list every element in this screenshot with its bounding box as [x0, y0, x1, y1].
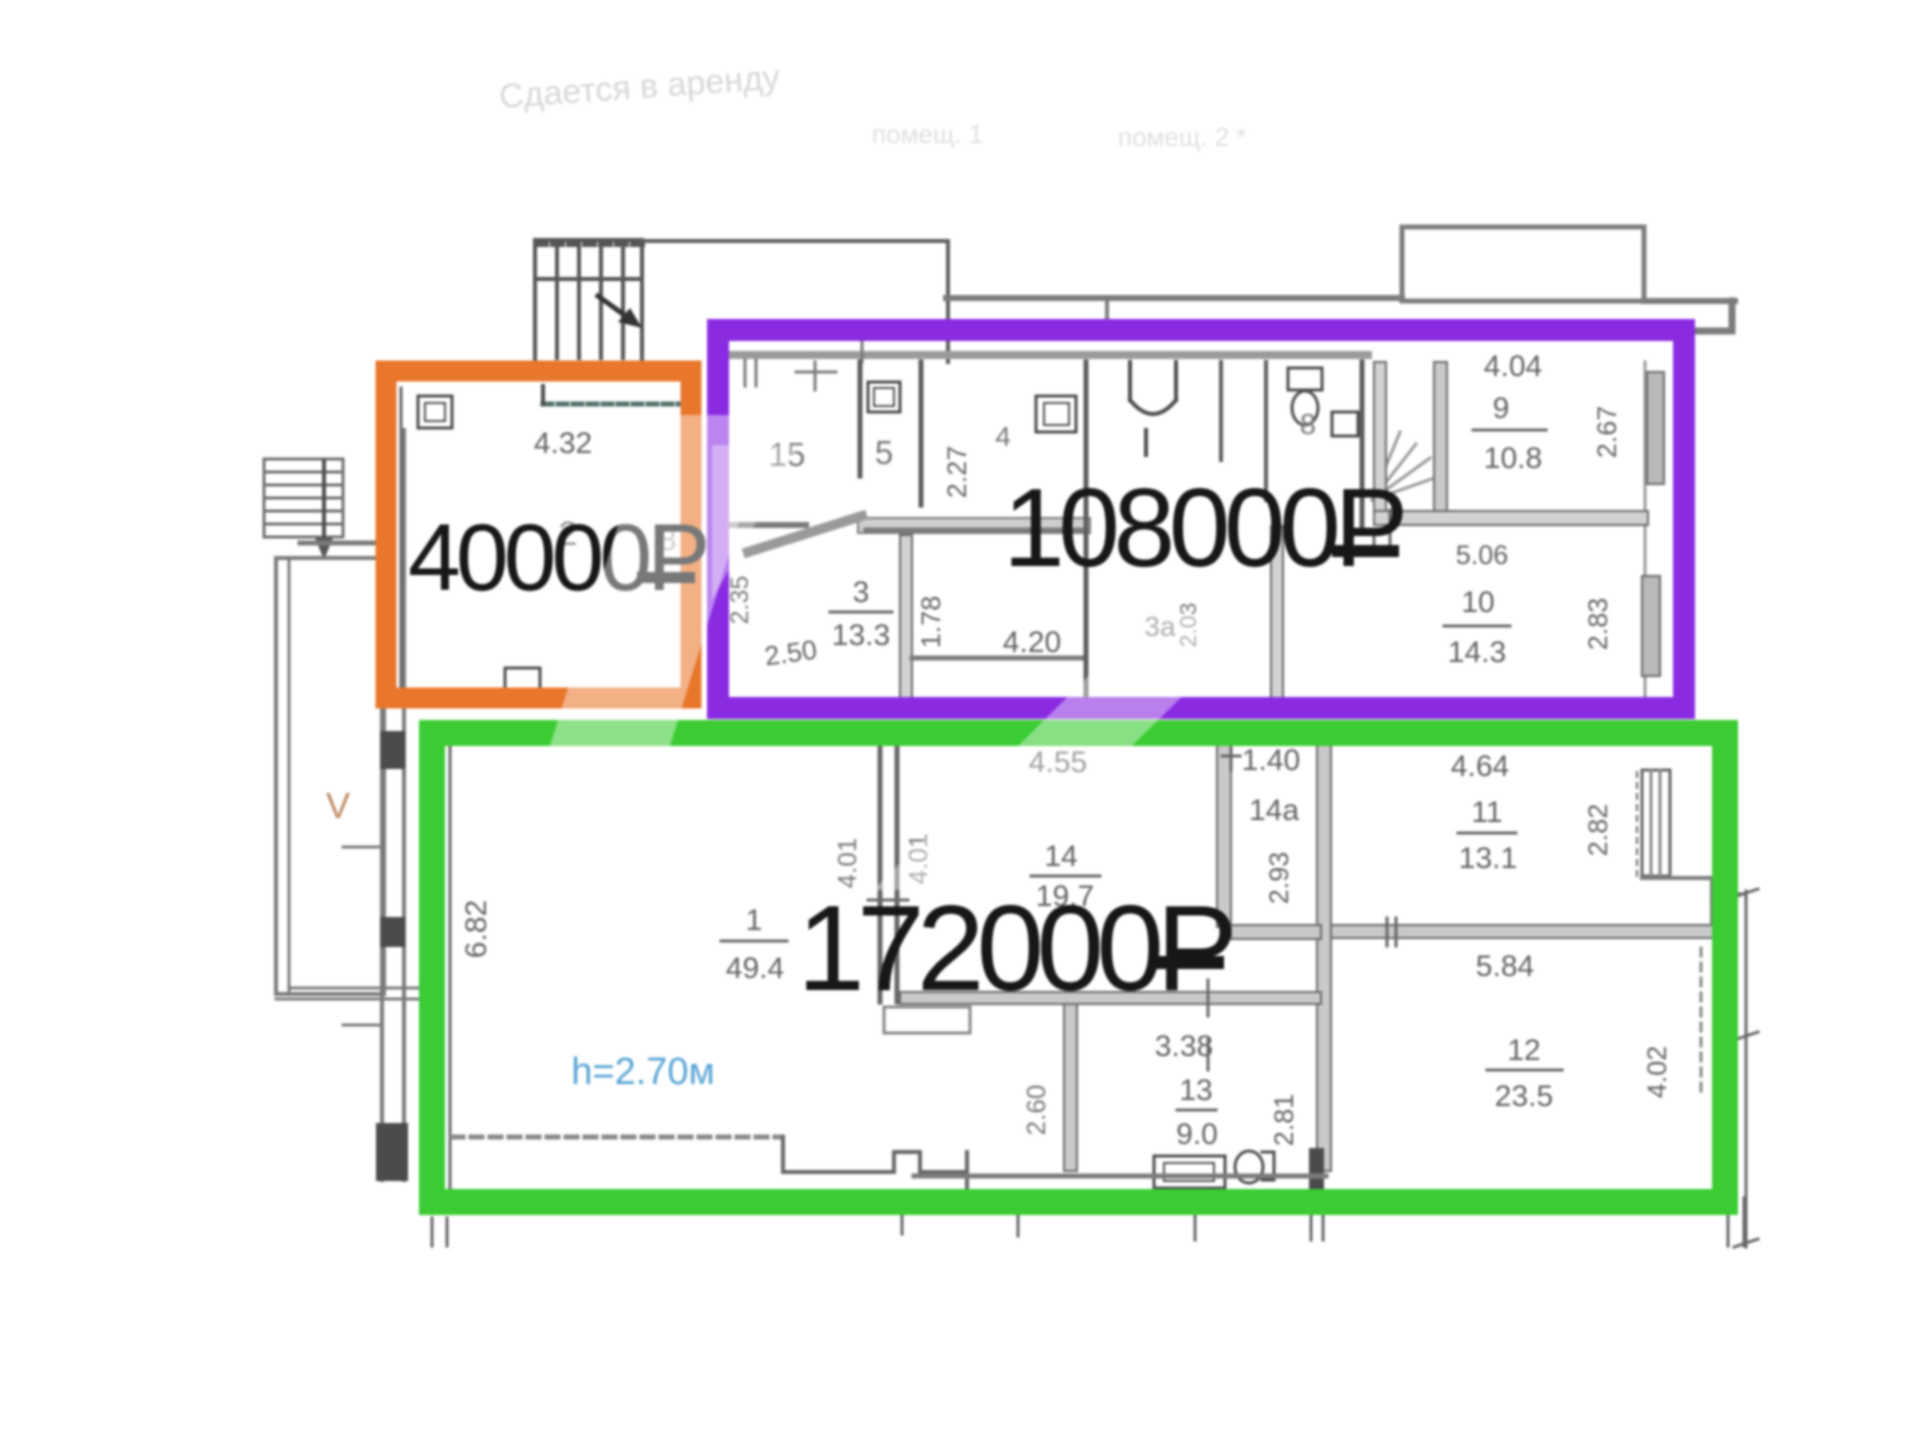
svg-text:9: 9: [1493, 392, 1510, 425]
svg-text:помещ. 2 *: помещ. 2 *: [1118, 122, 1247, 152]
svg-text:5.06: 5.06: [1456, 540, 1509, 570]
svg-text:3.38: 3.38: [1155, 1030, 1213, 1063]
svg-text:1.78: 1.78: [916, 596, 946, 649]
svg-text:14.3: 14.3: [1448, 636, 1506, 669]
svg-text:13.3: 13.3: [832, 619, 890, 652]
svg-text:5: 5: [875, 434, 893, 471]
svg-text:1.40: 1.40: [1242, 744, 1300, 777]
svg-text:4.04: 4.04: [1484, 350, 1542, 383]
svg-text:3: 3: [853, 576, 870, 609]
svg-text:2.67: 2.67: [1592, 406, 1622, 459]
svg-text:2.82: 2.82: [1583, 804, 1613, 857]
svg-text:14: 14: [1044, 840, 1077, 873]
svg-text:4.20: 4.20: [1003, 626, 1061, 659]
svg-text:2.81: 2.81: [1269, 1094, 1299, 1147]
svg-text:помещ. 1: помещ. 1: [872, 119, 983, 149]
svg-text:4.64: 4.64: [1451, 750, 1509, 783]
svg-text:8: 8: [1300, 409, 1316, 441]
svg-text:10.8: 10.8: [1484, 442, 1542, 475]
svg-text:12: 12: [1507, 1034, 1540, 1067]
svg-text:10: 10: [1461, 586, 1494, 619]
svg-text:V: V: [326, 785, 350, 826]
svg-text:49.4: 49.4: [726, 952, 784, 985]
svg-text:23.5: 23.5: [1495, 1080, 1553, 1113]
svg-text:2.35: 2.35: [726, 576, 754, 625]
svg-text:4.02: 4.02: [1642, 1046, 1672, 1099]
svg-text:2.27: 2.27: [942, 446, 972, 499]
svg-text:1: 1: [746, 904, 763, 937]
svg-text:13: 13: [1179, 1074, 1212, 1107]
svg-text:13.1: 13.1: [1459, 842, 1517, 875]
svg-text:14а: 14а: [1249, 794, 1299, 827]
svg-text:108000P: 108000P: [1003, 466, 1403, 590]
svg-text:4.32: 4.32: [534, 427, 592, 460]
svg-text:4: 4: [995, 421, 1011, 452]
svg-text:6.82: 6.82: [460, 900, 493, 958]
svg-text:172000P: 172000P: [797, 880, 1231, 1016]
svg-text:2.60: 2.60: [1021, 1085, 1051, 1136]
svg-text:2.93: 2.93: [1264, 852, 1294, 905]
svg-text:2.83: 2.83: [1583, 598, 1613, 651]
svg-text:9.0: 9.0: [1176, 1118, 1218, 1151]
svg-text:5.84: 5.84: [1476, 950, 1534, 983]
svg-text:11: 11: [1471, 796, 1502, 829]
svg-text:h=2.70м: h=2.70м: [571, 1051, 714, 1093]
